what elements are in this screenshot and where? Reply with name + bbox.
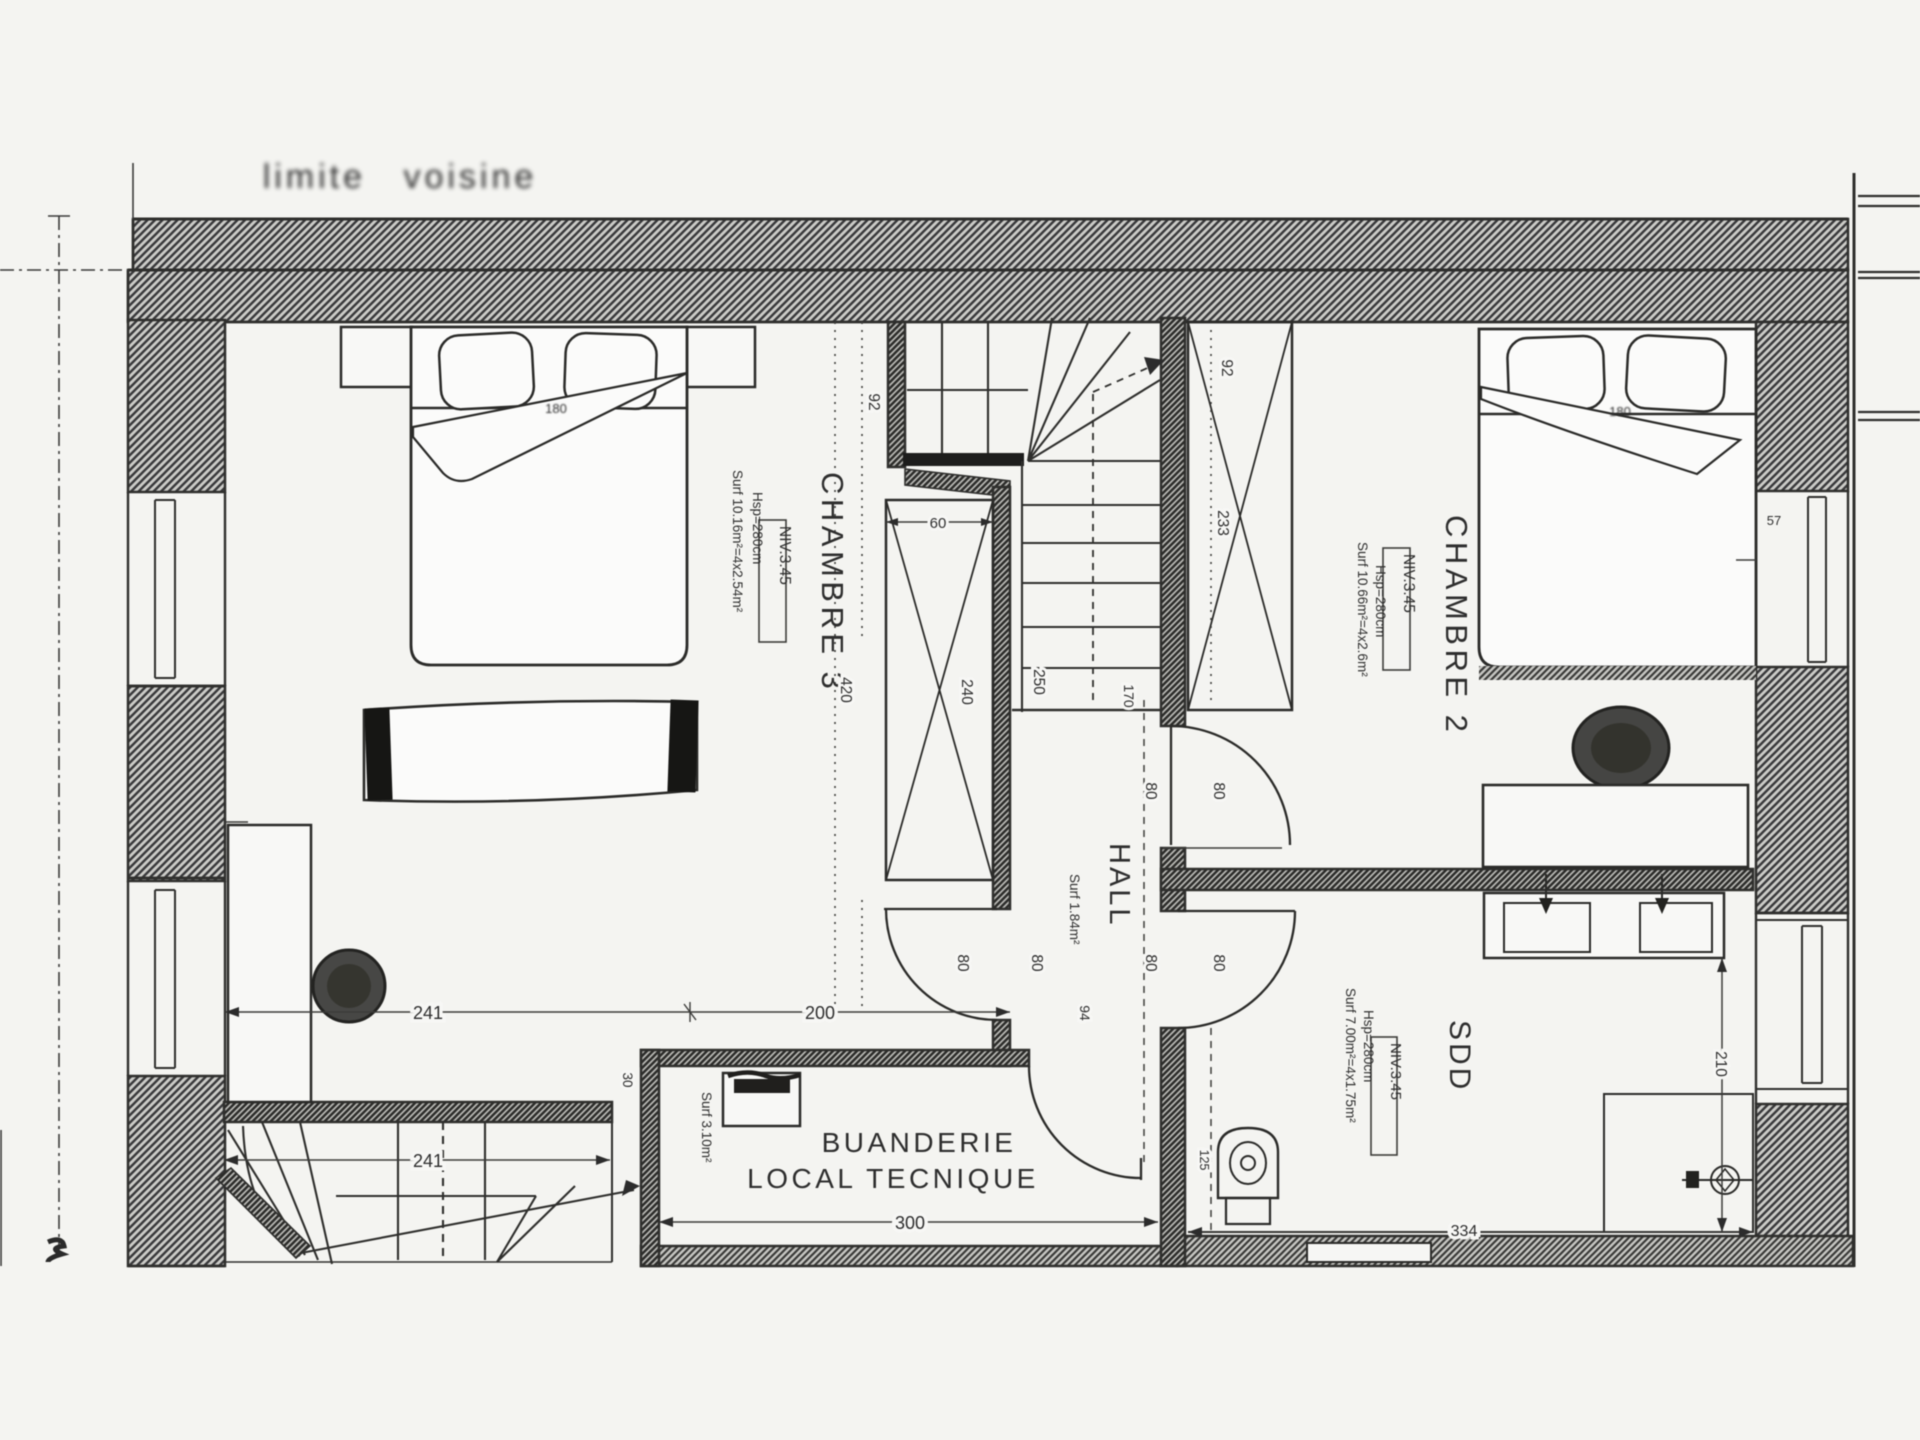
svg-text:Surf 1.84m²: Surf 1.84m² <box>1067 874 1082 945</box>
svg-text:Surf 10.66m²=4x2.6m²: Surf 10.66m²=4x2.6m² <box>1355 542 1370 677</box>
svg-text:Surf 7.00m²=4x1.75m²: Surf 7.00m²=4x1.75m² <box>1343 988 1358 1123</box>
svg-text:241: 241 <box>413 1003 443 1023</box>
svg-text:30: 30 <box>620 1072 635 1087</box>
svg-text:80: 80 <box>1142 782 1159 800</box>
svg-text:92: 92 <box>1218 359 1235 376</box>
svg-text:CHAMBRE 2: CHAMBRE 2 <box>1439 515 1474 736</box>
svg-text:240: 240 <box>958 679 975 705</box>
svg-text:Hsp=280cm: Hsp=280cm <box>750 492 765 564</box>
svg-text:210: 210 <box>1712 1051 1729 1077</box>
svg-text:57: 57 <box>1767 513 1781 528</box>
svg-text:SDD: SDD <box>1443 1020 1476 1092</box>
svg-text:BUANDERIE: BUANDERIE <box>822 1127 1017 1158</box>
svg-text:420: 420 <box>837 677 854 703</box>
svg-text:80: 80 <box>1142 954 1159 972</box>
svg-text:233: 233 <box>1214 510 1231 536</box>
svg-text:200: 200 <box>805 1003 835 1023</box>
svg-text:94: 94 <box>1077 1005 1093 1021</box>
svg-text:80: 80 <box>1210 782 1227 800</box>
svg-text:334: 334 <box>1451 1223 1478 1240</box>
svg-text:92: 92 <box>865 393 882 410</box>
svg-text:170: 170 <box>1121 684 1137 708</box>
svg-text:LOCAL TECNIQUE: LOCAL TECNIQUE <box>747 1163 1039 1194</box>
svg-text:Hsp=280cm: Hsp=280cm <box>1373 565 1388 637</box>
svg-text:NIV.3.45: NIV.3.45 <box>776 526 793 585</box>
svg-text:125: 125 <box>1197 1150 1211 1171</box>
svg-text:Surf 10.16m²=4x2.54m²: Surf 10.16m²=4x2.54m² <box>730 470 745 613</box>
svg-text:80: 80 <box>954 954 971 972</box>
svg-text:Surf 3.10m²: Surf 3.10m² <box>699 1092 714 1163</box>
svg-text:180: 180 <box>545 401 567 416</box>
svg-text:limite voisine: limite voisine <box>263 158 538 196</box>
svg-text:80: 80 <box>1210 954 1227 972</box>
svg-text:80: 80 <box>1028 954 1045 972</box>
svg-text:250: 250 <box>1030 669 1047 695</box>
svg-text:NIV.3.45: NIV.3.45 <box>1400 554 1417 613</box>
svg-text:Hsp=280cm: Hsp=280cm <box>1361 1010 1376 1082</box>
svg-text:241: 241 <box>413 1151 443 1171</box>
svg-text:60: 60 <box>930 515 947 532</box>
svg-text:300: 300 <box>895 1213 925 1233</box>
svg-text:CHAMBRE 3: CHAMBRE 3 <box>815 472 850 693</box>
svg-text:HALL: HALL <box>1103 843 1135 928</box>
svg-text:180: 180 <box>1609 404 1631 419</box>
svg-text:NIV.3.45: NIV.3.45 <box>1387 1043 1404 1100</box>
